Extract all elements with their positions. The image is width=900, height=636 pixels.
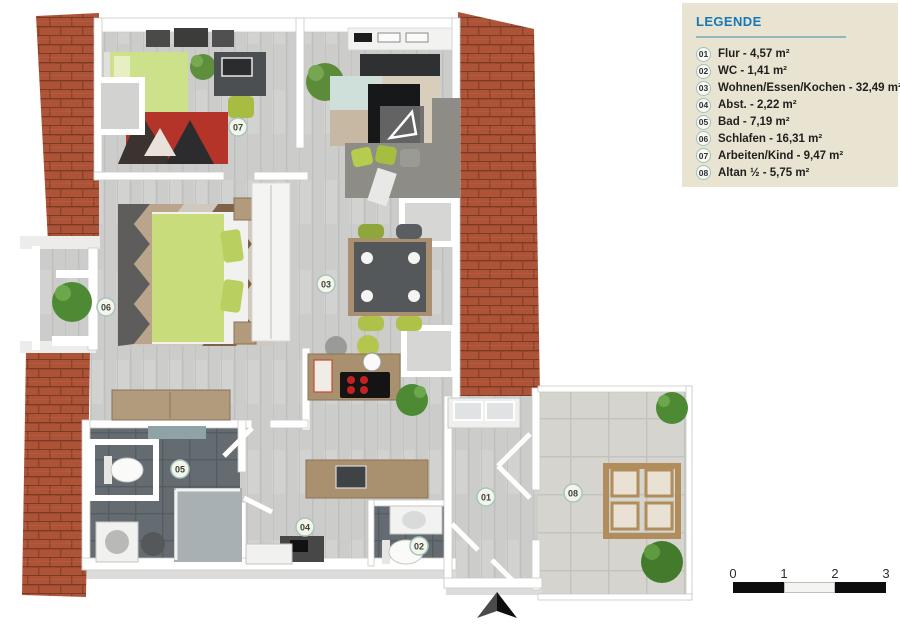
legend-panel: LEGENDE 01 Flur - 4,57 m² 02 WC - 1,41 m…	[682, 3, 898, 187]
roof-window-kitchen	[404, 328, 454, 374]
toilet05	[111, 458, 143, 482]
legend-item-wc: WC - 1,41 m²	[718, 65, 787, 77]
legend-row: 06 Schlafen - 16,31 m²	[696, 130, 888, 147]
legend-badge-08: 08	[696, 165, 711, 180]
wall-wc-left	[368, 500, 374, 566]
bed07-pillow	[114, 56, 130, 80]
roof-strip-bottom-left	[22, 352, 90, 597]
legend-row: 08 Altan ½ - 5,75 m²	[696, 164, 888, 181]
roof-strip-right	[458, 12, 540, 396]
burner-1	[347, 376, 355, 384]
legend-badge-04: 04	[696, 98, 711, 113]
legend-badge-07: 07	[696, 148, 711, 163]
wall-07-06-b	[254, 172, 308, 180]
legend-item-wohnen: Wohnen/Essen/Kochen - 32,49 m²	[718, 82, 900, 94]
scale-label-2: 2	[831, 566, 838, 581]
legend-divider	[696, 36, 846, 38]
counter-04-sink	[336, 466, 366, 488]
plant07-leaf	[191, 55, 203, 67]
legend-item-bad: Bad - 7,19 m²	[718, 116, 790, 128]
badge-room-04: 04	[296, 518, 314, 536]
picture-frame-3	[212, 30, 234, 47]
roof-strip-top-left	[36, 13, 99, 242]
bay-sill-top	[56, 270, 92, 278]
terrace-chair-2	[646, 470, 672, 496]
cooktop	[340, 372, 390, 398]
legend-item-flur: Flur - 4,57 m²	[718, 48, 790, 60]
badge-room-07-label: 07	[233, 122, 243, 132]
burner-2	[360, 376, 368, 384]
sofa-pillow-green2	[375, 144, 398, 165]
kitchen-sink	[363, 353, 381, 371]
wc-basin	[402, 511, 426, 529]
watermark-logo	[380, 106, 424, 146]
terrace-plant-top-leaf	[658, 395, 670, 407]
terrace-chair-4	[646, 503, 672, 529]
wall-flur-terrace-a	[532, 388, 540, 490]
legend-badge-01: 01	[696, 47, 711, 62]
wall-06-bath-b	[270, 420, 308, 428]
badge-room-02: 02	[410, 537, 428, 555]
scale-label-0: 0	[729, 566, 736, 581]
desk07-monitor	[222, 58, 252, 76]
north-arrow-right	[497, 592, 517, 618]
scale-bar: 0 1 2 3	[731, 566, 888, 598]
plant-bay-leaf	[55, 285, 71, 301]
sideboard-item-box2	[406, 33, 428, 42]
legend-row: 07 Arbeiten/Kind - 9,47 m²	[696, 147, 888, 164]
legend-item-altan: Altan ½ - 5,75 m²	[718, 167, 809, 179]
plant-living-leaf	[308, 65, 324, 81]
scale-segment-black-2	[835, 582, 886, 593]
legend-row: 05 Bad - 7,19 m²	[696, 114, 888, 131]
wall-07-living	[296, 18, 304, 148]
badge-room-05-label: 05	[175, 464, 185, 474]
wall-07-06-a	[94, 172, 224, 180]
bay-sill-bottom	[52, 336, 92, 346]
burner-4	[360, 386, 368, 394]
dining-chair-1	[358, 224, 384, 239]
sideboard-item-box1	[378, 33, 400, 42]
bath-vanity	[148, 426, 206, 439]
terrace-plant-bottom-leaf	[644, 544, 660, 560]
entrance-window-2	[486, 402, 514, 420]
bay-rail	[32, 246, 40, 350]
kitchen-item	[314, 360, 332, 392]
railing-top	[538, 386, 692, 392]
rug-living-taupe	[330, 110, 370, 146]
badge-room-08-label: 08	[568, 488, 578, 498]
scale-bar-segments	[733, 582, 886, 593]
badge-room-08: 08	[564, 484, 582, 502]
bed06-duvet	[152, 214, 224, 342]
legend-title: LEGENDE	[696, 14, 888, 29]
wall-wc-top	[368, 500, 452, 506]
counter-04	[306, 460, 428, 498]
picture-frame-2	[174, 28, 208, 47]
legend-row: 01 Flur - 4,57 m²	[696, 46, 888, 63]
badge-room-03-label: 03	[321, 279, 331, 289]
roof-window-07	[98, 80, 142, 132]
legend-badge-02: 02	[696, 64, 711, 79]
badge-room-05: 05	[171, 460, 189, 478]
wall-left-bath	[82, 420, 90, 570]
badge-room-06-label: 06	[101, 302, 111, 312]
scale-label-3: 3	[882, 566, 889, 581]
washing-machine-door	[105, 530, 129, 554]
wall-bath-04-a	[238, 420, 246, 472]
legend-item-arbeiten: Arbeiten/Kind - 9,47 m²	[718, 150, 843, 162]
entrance-window-1	[454, 402, 482, 420]
counter-04-item	[290, 540, 308, 552]
legend-badge-05: 05	[696, 115, 711, 130]
chair07	[228, 96, 254, 118]
badge-room-01-label: 01	[481, 492, 491, 502]
railing-right	[686, 386, 692, 600]
legend-item-schlafen: Schlafen - 16,31 m²	[718, 133, 822, 145]
shower	[174, 488, 242, 562]
floorplan-page: 01 02 03 04 05 06	[0, 0, 900, 636]
plate-2	[408, 252, 420, 264]
railing-bottom	[538, 594, 692, 600]
plate-1	[361, 252, 373, 264]
sideboard-item-remote	[354, 33, 372, 42]
badge-room-02-label: 02	[414, 541, 424, 551]
legend-badge-06: 06	[696, 131, 711, 146]
burner-3	[347, 386, 355, 394]
scale-segment-black-1	[733, 582, 784, 593]
legend-row: 02 WC - 1,41 m²	[696, 63, 888, 80]
dining-chair-2	[396, 224, 422, 239]
dresser	[112, 390, 230, 420]
sofa-pillow-gray	[400, 149, 420, 167]
badge-room-06: 06	[97, 298, 115, 316]
scale-label-1: 1	[780, 566, 787, 581]
laundry-bin	[141, 532, 165, 556]
legend-row: 04 Abst. - 2,22 m²	[696, 97, 888, 114]
plant-kitchen-leaf	[414, 386, 426, 398]
plate-4	[408, 290, 420, 302]
wall-flur-bottom	[444, 578, 542, 588]
legend-row: 03 Wohnen/Essen/Kochen - 32,49 m²	[696, 80, 888, 97]
badge-room-04-label: 04	[300, 522, 310, 532]
badge-room-07: 07	[229, 118, 247, 136]
legend-badge-03: 03	[696, 81, 711, 96]
appliance-04	[246, 544, 292, 564]
plate-3	[361, 290, 373, 302]
dining-chair-4	[396, 316, 422, 331]
sofa-chaise	[432, 98, 460, 146]
north-arrow-icon	[477, 592, 517, 618]
scale-segment-light	[784, 582, 835, 593]
badge-room-01: 01	[477, 488, 495, 506]
badge-room-03: 03	[317, 275, 335, 293]
north-arrow-left	[477, 592, 497, 618]
terrace-chair-1	[612, 470, 638, 496]
dining-chair-3	[358, 316, 384, 331]
legend-item-abst: Abst. - 2,22 m²	[718, 99, 797, 111]
terrace-chair-3	[612, 503, 638, 529]
picture-frame-1	[146, 30, 170, 47]
